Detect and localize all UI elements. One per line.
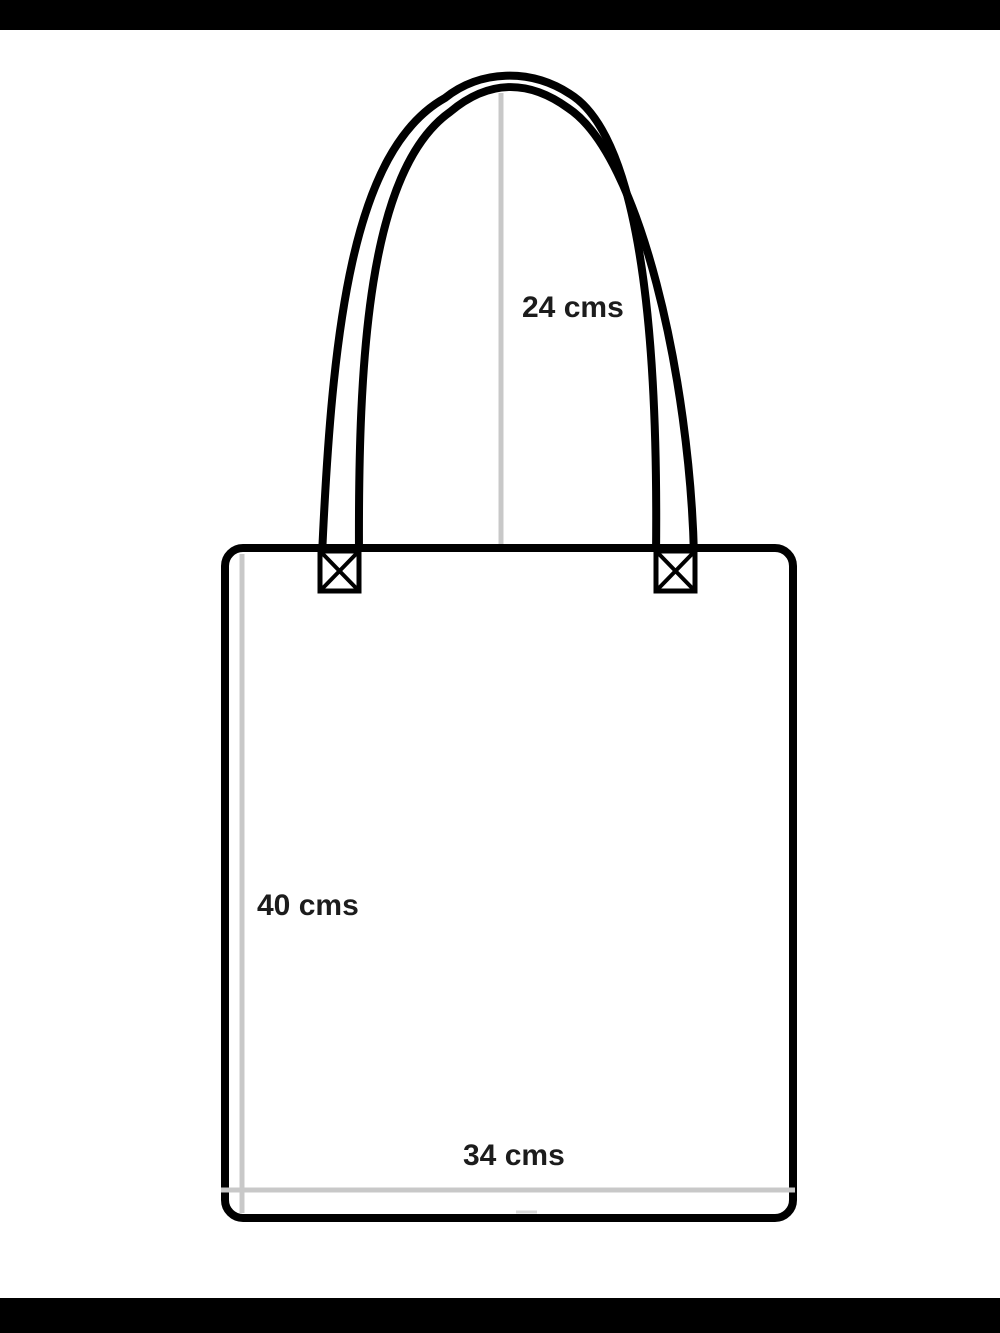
bag-body-outline xyxy=(225,548,793,1218)
bag-height-label: 40 cms xyxy=(257,891,359,921)
stitch-box-left xyxy=(320,551,359,591)
bag-width-label: 34 cms xyxy=(463,1141,565,1171)
tote-bag-diagram xyxy=(0,0,1000,1333)
handle-height-label: 24 cms xyxy=(522,293,624,323)
stitch-box-right xyxy=(656,551,695,591)
diagram-canvas: 24 cms 40 cms 34 cms xyxy=(0,0,1000,1333)
